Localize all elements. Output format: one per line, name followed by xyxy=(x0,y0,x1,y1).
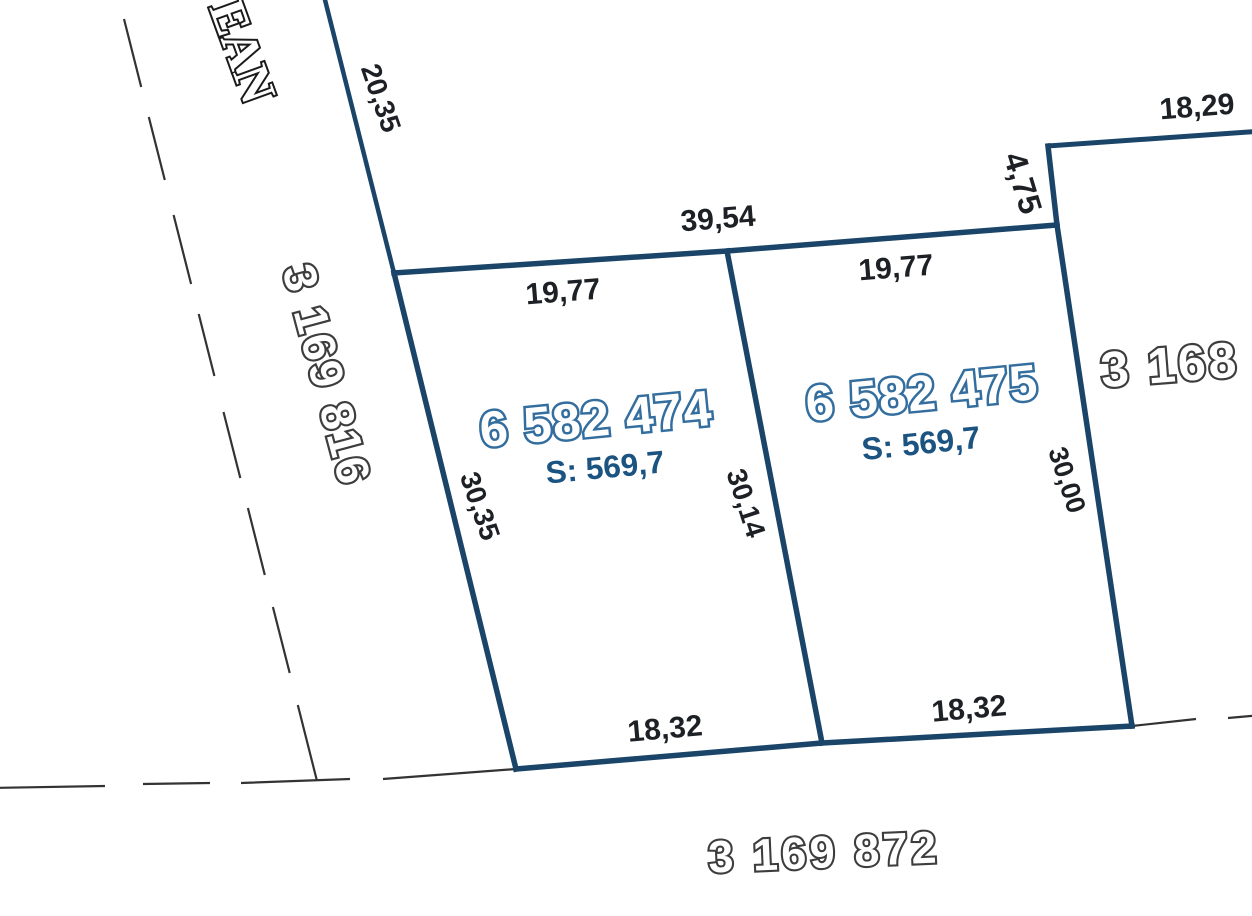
svg-text:18,32: 18,32 xyxy=(626,709,704,748)
svg-text:18,32: 18,32 xyxy=(930,689,1008,728)
svg-text:18,29: 18,29 xyxy=(1158,88,1235,127)
svg-text:19,77: 19,77 xyxy=(857,249,934,288)
svg-text:19,77: 19,77 xyxy=(524,273,601,312)
svg-text:3 169 872: 3 169 872 xyxy=(707,821,941,882)
svg-text:39,54: 39,54 xyxy=(679,200,757,239)
